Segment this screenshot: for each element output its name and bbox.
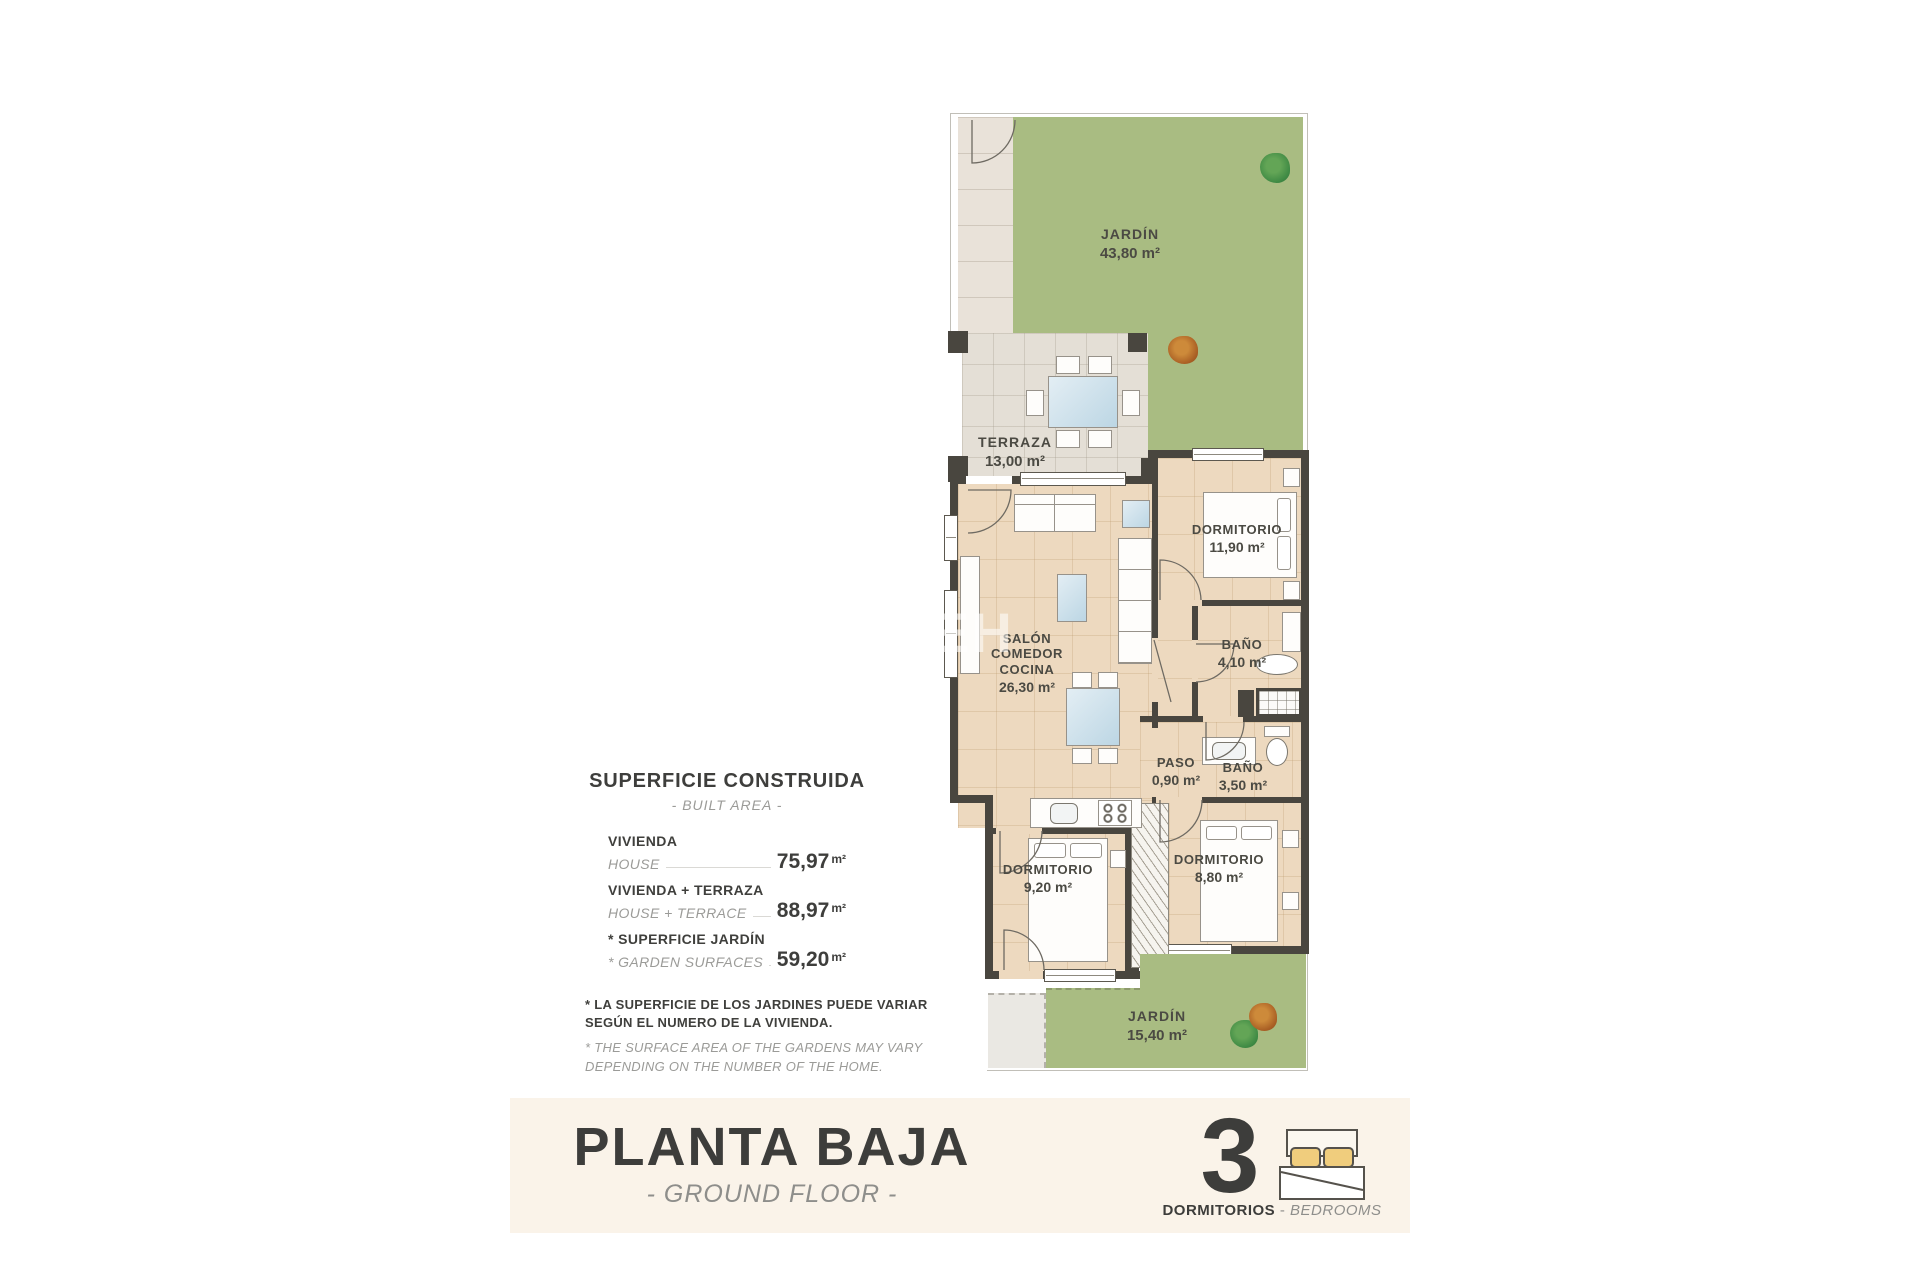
summary-label-en: * GARDEN SURFACES <box>608 954 763 970</box>
room-area: 9,20 m² <box>988 879 1108 896</box>
floor-subtitle: - GROUND FLOOR - <box>572 1180 972 1209</box>
summary-row: VIVIENDA + TERRAZA HOUSE + TERRACE 88,97… <box>608 882 846 921</box>
bedrooms-count: 3 <box>1180 1104 1280 1208</box>
room-area: 4,10 m² <box>1192 654 1292 671</box>
summary-value: 75,97 <box>777 851 830 872</box>
footer-band: PLANTA BAJA - GROUND FLOOR - 3 DORMITORI… <box>510 1098 1410 1233</box>
watermark: EH <box>932 600 1014 665</box>
summary-label-es: VIVIENDA + TERRAZA <box>608 882 846 898</box>
summary-label-en: HOUSE <box>608 856 660 872</box>
room-label-bedroom1: DORMITORIO 11,90 m² <box>1177 522 1297 556</box>
leader-line <box>769 964 771 966</box>
summary-row: * SUPERFICIE JARDÍN * GARDEN SURFACES 59… <box>608 931 846 970</box>
room-name: DORMITORIO <box>1177 522 1297 537</box>
room-name: DORMITORIO <box>1159 852 1279 867</box>
built-area-summary: SUPERFICIE CONSTRUIDA - BUILT AREA - VIV… <box>582 770 872 980</box>
summary-title: SUPERFICIE CONSTRUIDA <box>582 770 872 793</box>
bedrooms-caption: DORMITORIOS - BEDROOMS <box>1157 1202 1387 1219</box>
room-label-bedroom2: DORMITORIO 9,20 m² <box>988 862 1108 896</box>
bedrooms-separator: - <box>1280 1202 1286 1219</box>
room-area: 8,80 m² <box>1159 869 1279 886</box>
summary-unit: m² <box>831 950 846 964</box>
room-area: 11,90 m² <box>1177 539 1297 556</box>
bed-icon <box>1278 1128 1370 1202</box>
room-name: BAÑO <box>1193 760 1293 775</box>
footnote-en: * THE SURFACE AREA OF THE GARDENS MAY VA… <box>585 1039 930 1075</box>
room-area: 3,50 m² <box>1193 777 1293 794</box>
room-name: BAÑO <box>1192 637 1292 652</box>
summary-label-es: * SUPERFICIE JARDÍN <box>608 931 846 947</box>
room-label-bath1: BAÑO 4,10 m² <box>1192 637 1292 671</box>
summary-label-es: VIVIENDA <box>608 833 846 849</box>
summary-subtitle: - BUILT AREA - <box>582 797 872 813</box>
summary-value: 59,20 <box>777 949 830 970</box>
room-name: DORMITORIO <box>988 862 1108 877</box>
bedrooms-label-en: BEDROOMS <box>1290 1202 1382 1219</box>
leader-line <box>666 866 771 868</box>
summary-value: 88,97 <box>777 900 830 921</box>
room-area: 26,30 m² <box>957 679 1097 696</box>
bedrooms-label-es: DORMITORIOS <box>1162 1202 1275 1219</box>
room-label-bedroom3: DORMITORIO 8,80 m² <box>1159 852 1279 886</box>
summary-unit: m² <box>831 901 846 915</box>
floor-title: PLANTA BAJA <box>572 1116 972 1178</box>
floor-plan: JARDÍN 43,80 m² TERRAZA 13,00 m² <box>0 0 1920 1280</box>
summary-unit: m² <box>831 852 846 866</box>
summary-row: VIVIENDA HOUSE 75,97 m² <box>608 833 846 872</box>
garden-footnote: * LA SUPERFICIE DE LOS JARDINES PUEDE VA… <box>585 996 930 1076</box>
summary-label-en: HOUSE + TERRACE <box>608 905 747 921</box>
footnote-es: * LA SUPERFICIE DE LOS JARDINES PUEDE VA… <box>585 996 930 1032</box>
room-label-bath2: BAÑO 3,50 m² <box>1193 760 1293 794</box>
leader-line <box>753 915 771 917</box>
